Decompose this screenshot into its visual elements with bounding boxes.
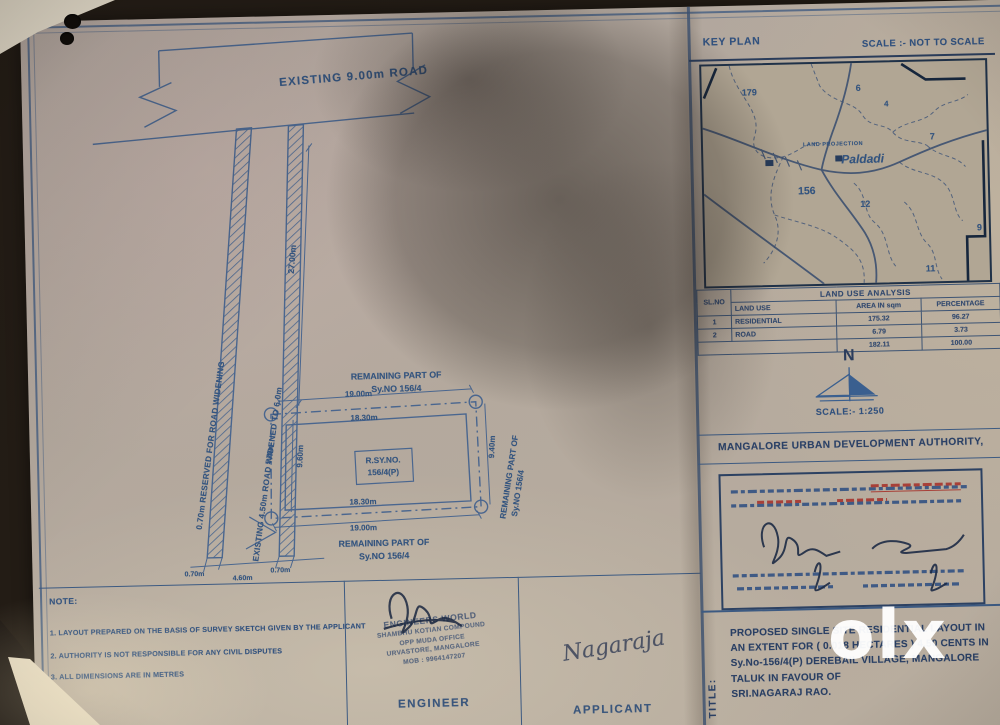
map-road-main [703, 122, 988, 176]
applicant-box: Nagaraja APPLICANT [519, 573, 705, 725]
title-label: TITLE: [706, 634, 719, 718]
map-parcel-156: 156 [798, 185, 816, 197]
map-boundary-thick-top [901, 63, 965, 80]
key-plan-scale-note: SCALE :- NOT TO SCALE [862, 36, 985, 50]
lu-cell: 2 [698, 328, 732, 342]
map-place-name: Paldadi [841, 151, 885, 166]
dim-19-top: 19.00m [345, 389, 372, 399]
map-boundary-thick-left [703, 68, 717, 98]
map-parcel-6: 6 [856, 83, 861, 93]
dim-070-left: 0.70m [185, 571, 205, 578]
north-arrow-icon [807, 364, 892, 404]
north-indicator: N SCALE:- 1:250 [696, 344, 1000, 420]
dim-960: 9.60m [295, 445, 305, 468]
map-boundary-thick-right [965, 140, 986, 280]
map-area-label: LAND PROJECTION [803, 141, 863, 148]
dim-19-bottom: 19.00m [350, 523, 377, 533]
kannada-approval-content [720, 470, 979, 604]
note-item-3: 3. ALL DIMENSIONS ARE IN METRES [51, 666, 336, 681]
photo-of-survey-plan: EXISTING 9.00m ROAD 27.00m 0.70m RESERVE… [0, 0, 1000, 725]
lu-header-slno: SL.NO [697, 289, 732, 316]
applicant-signature: Nagaraja [561, 626, 667, 667]
plot-number-line2: 156/4(P) [368, 468, 400, 478]
road-top-upper-line [158, 33, 412, 51]
remaining-top-line1: REMAINING PART OF [351, 370, 443, 382]
dim-940: 9.40m [487, 435, 497, 458]
punch-hole [60, 32, 74, 45]
lu-cell: 1 [697, 315, 731, 329]
engineer-signature [363, 574, 504, 641]
olx-watermark: olx [828, 596, 948, 675]
road-top-lower-line [92, 113, 414, 144]
key-plan-map: 179 6 4 7 156 12 9 11 LAND PROJECTION Pa… [699, 58, 992, 288]
note-item-1: 1. LAYOUT PREPARED ON THE BASIS OF SURVE… [50, 622, 335, 637]
authority-name: MANGALORE URBAN DEVELOPMENT AUTHORITY, [698, 428, 1000, 465]
remaining-bottom-line2: Sy.NO 156/4 [359, 550, 410, 561]
officer-signature-right [872, 535, 964, 554]
road-break-left [139, 82, 176, 127]
map-parcel-12: 12 [860, 199, 870, 209]
key-plan-title: KEY PLAN [703, 35, 761, 48]
applicant-label: APPLICANT [522, 702, 704, 718]
approval-stamp-box [718, 468, 985, 610]
map-parcel-9: 9 [977, 222, 982, 232]
map-parcel-11: 11 [926, 263, 936, 273]
notes-heading: NOTE: [49, 590, 334, 606]
dim-460: 4.60m [233, 575, 253, 582]
remaining-top-line2: Sy.NO 156/4 [371, 383, 422, 394]
red-ink-entries [757, 484, 961, 503]
north-scale: SCALE:- 1:250 [816, 405, 885, 417]
map-parcel-179: 179 [742, 87, 757, 97]
note-item-2: 2. AUTHORITY IS NOT RESPONSIBLE FOR ANY … [50, 645, 335, 660]
dim-1830-bottom: 18.30m [349, 497, 376, 507]
dim-070-right: 0.70m [270, 567, 290, 574]
officer-signature-left [762, 522, 841, 564]
north-letter: N [843, 347, 855, 365]
remaining-bottom-line1: REMAINING PART OF [338, 537, 430, 549]
engineer-box: ENGINEERS WORLD SHAMBHU KOTIAN COMPOUND … [345, 577, 523, 725]
plot-number-line1: R.SY.NO. [365, 455, 400, 465]
punch-hole [64, 14, 81, 29]
dim-1830-top: 18.30m [350, 413, 377, 423]
initial-flourish-right [931, 564, 948, 590]
engineer-label: ENGINEER [347, 696, 520, 712]
map-road-southwest [704, 192, 824, 287]
map-parcel-4: 4 [884, 99, 889, 108]
map-road-south [822, 169, 877, 284]
plot-number-box [355, 448, 414, 484]
map-parcel-7: 7 [930, 131, 935, 141]
key-plan-header: KEY PLAN SCALE :- NOT TO SCALE [688, 18, 995, 62]
notes-box: NOTE: 1. LAYOUT PREPARED ON THE BASIS OF… [39, 581, 349, 725]
